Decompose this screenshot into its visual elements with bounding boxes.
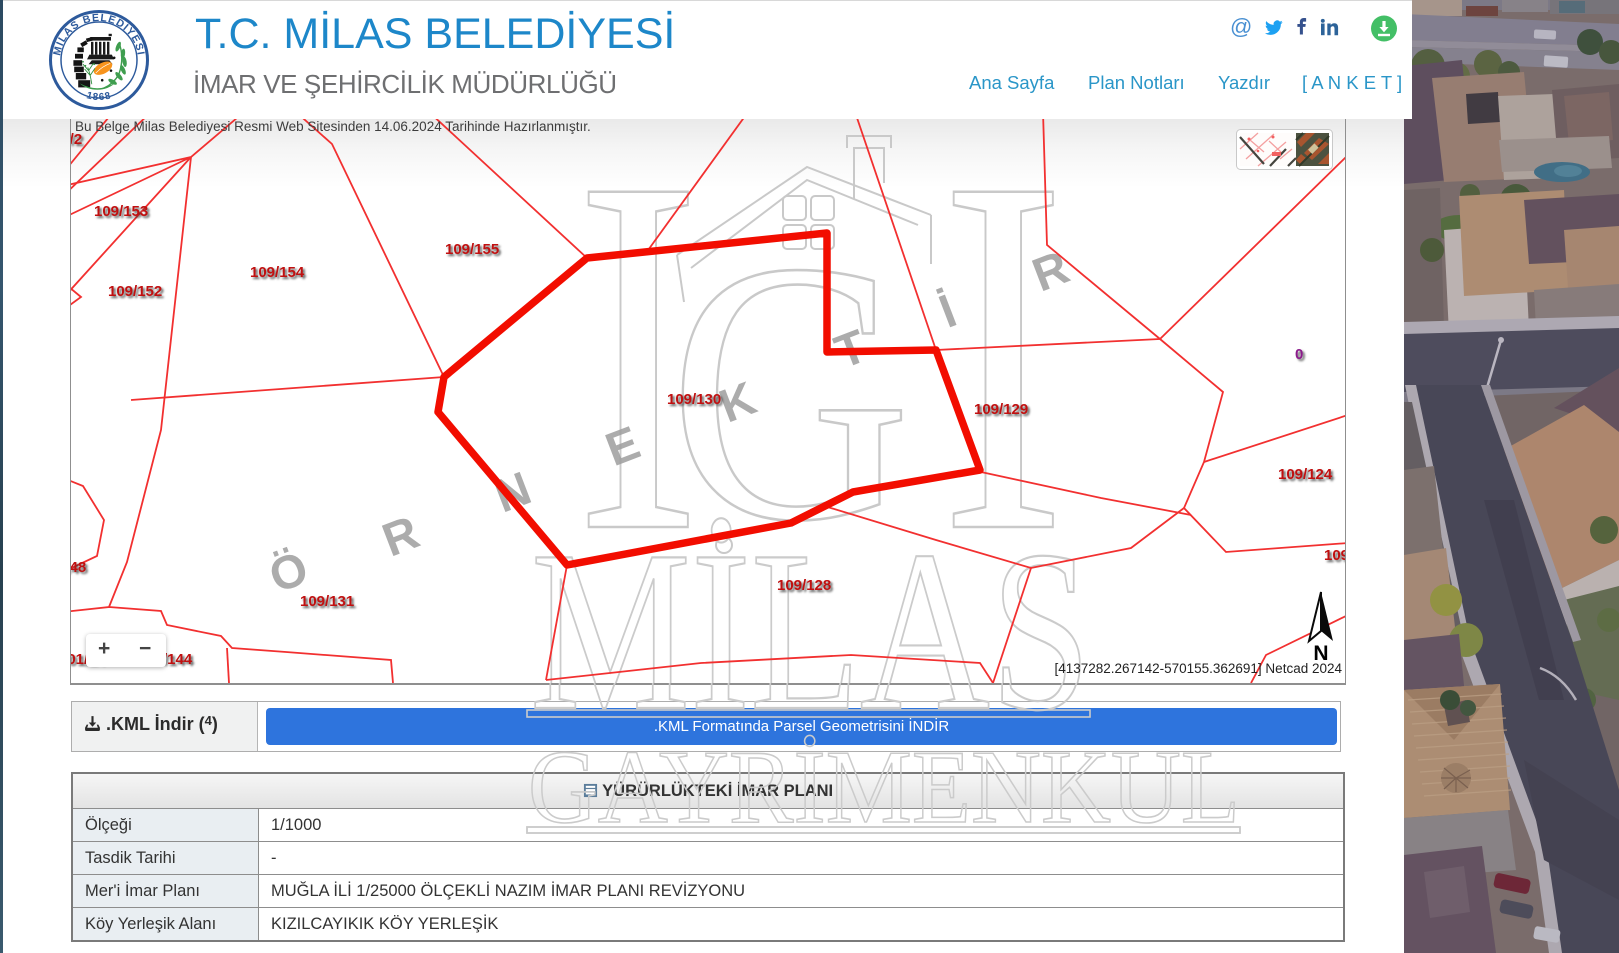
svg-text:@: @ — [1230, 14, 1252, 39]
